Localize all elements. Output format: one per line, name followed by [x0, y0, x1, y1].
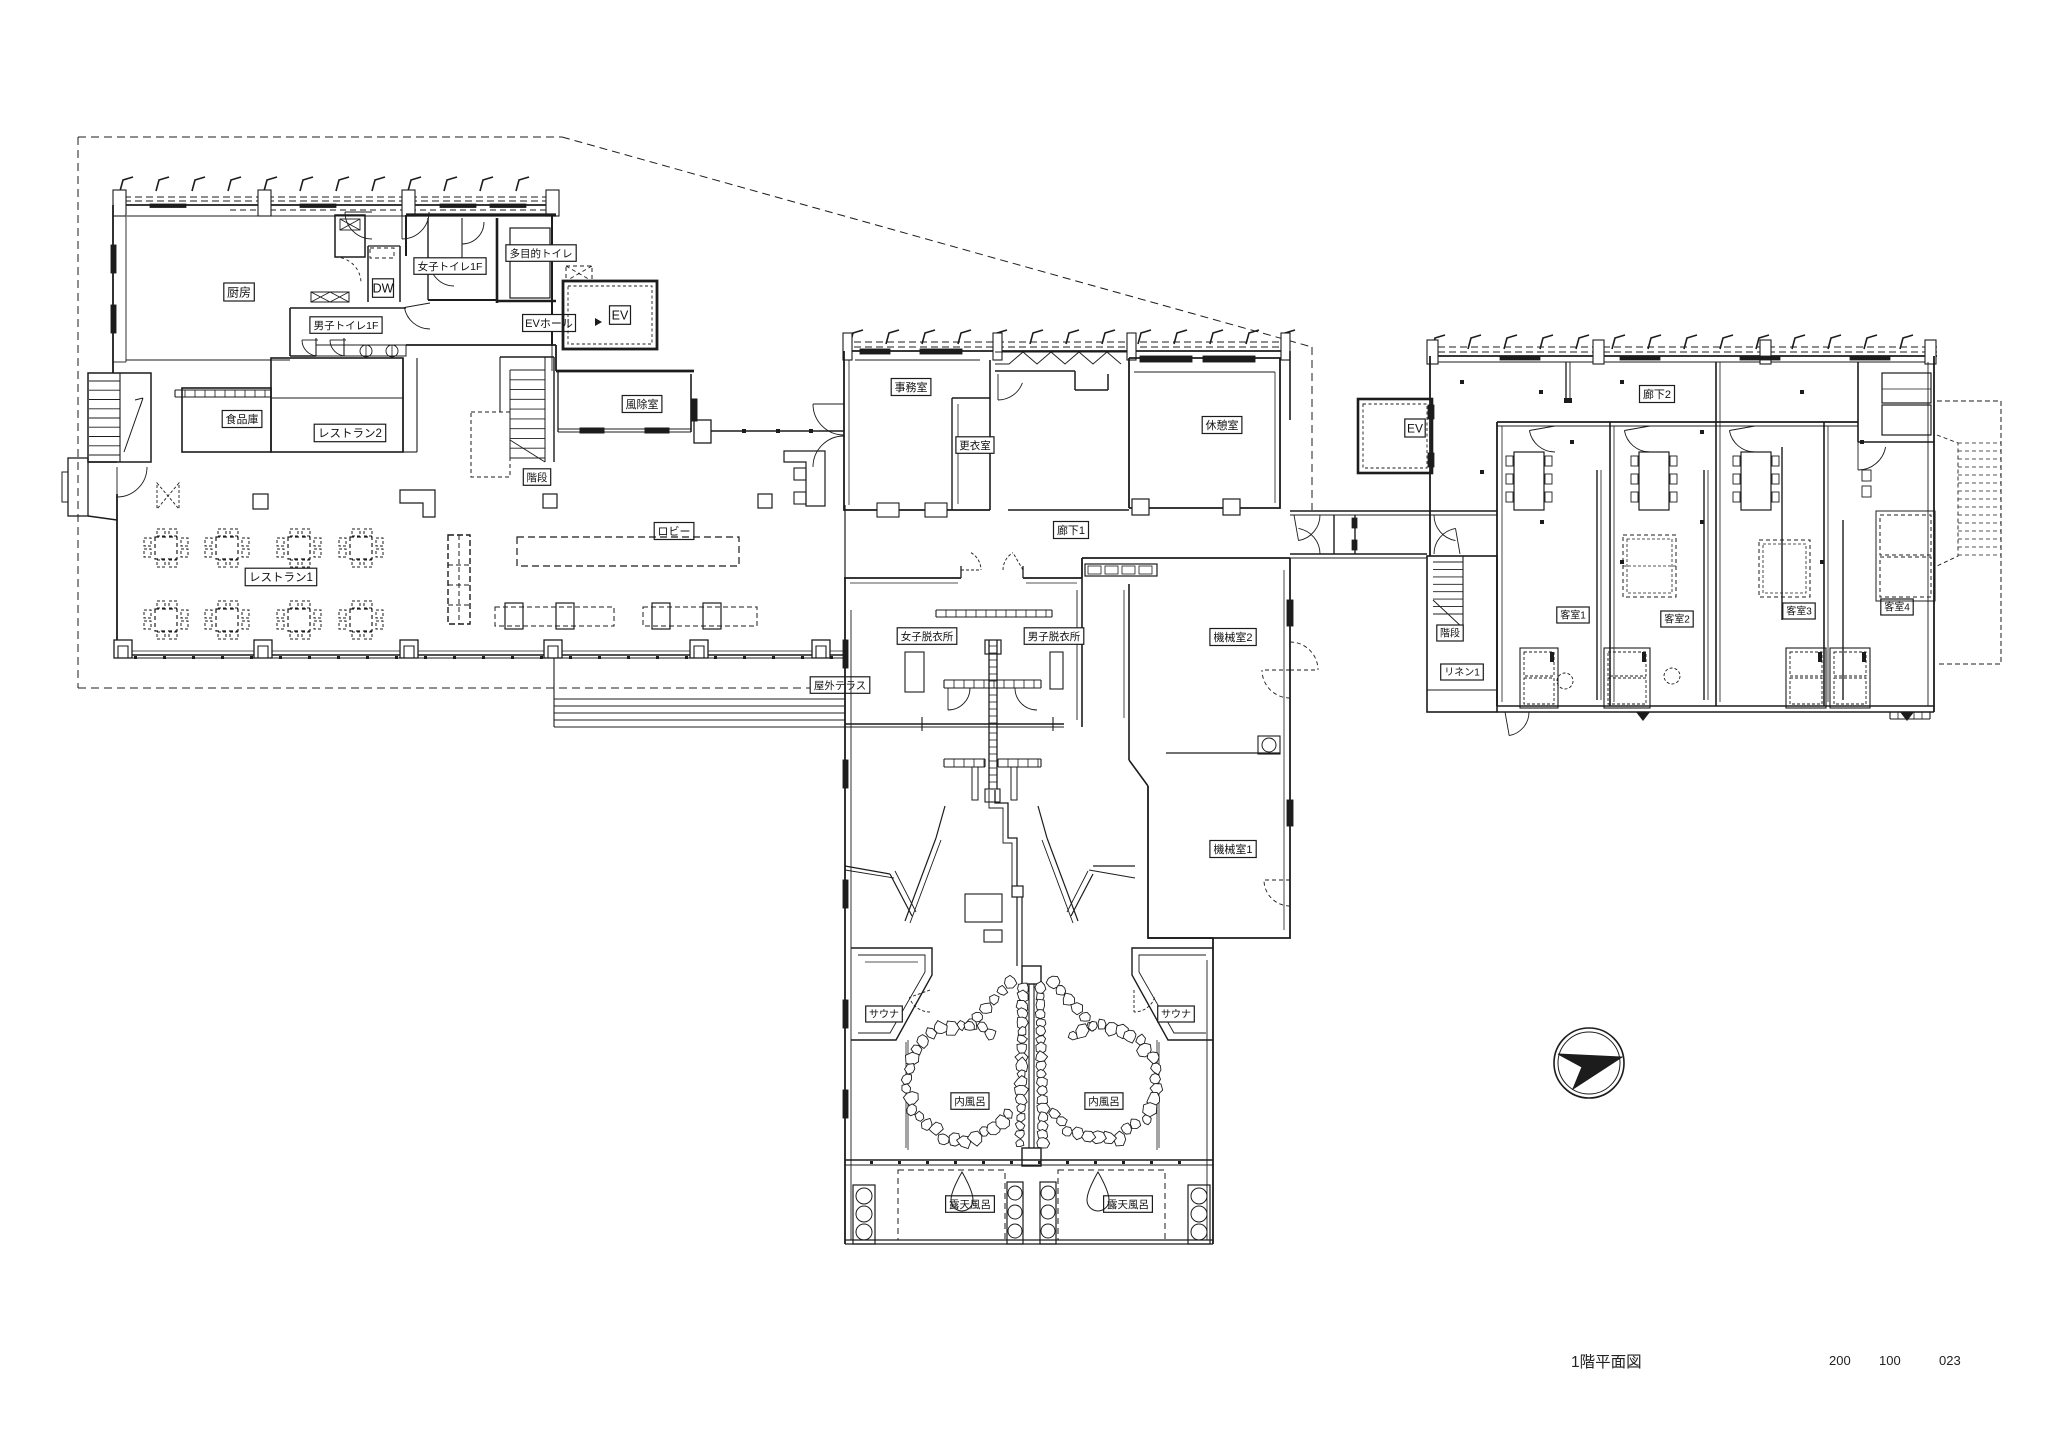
svg-text:リネン1: リネン1: [1444, 667, 1480, 679]
svg-text:レストラン2: レストラン2: [318, 428, 382, 440]
svg-text:男子トイレ1F: 男子トイレ1F: [314, 320, 379, 332]
svg-text:023: 023: [1939, 1353, 1961, 1368]
svg-text:サウナ: サウナ: [869, 1009, 899, 1021]
svg-text:機械室2: 機械室2: [1213, 630, 1252, 644]
svg-text:EVホール: EVホール: [525, 317, 573, 330]
svg-text:サウナ: サウナ: [1161, 1009, 1191, 1021]
svg-text:1階平面図: 1階平面図: [1571, 1353, 1642, 1371]
svg-text:風除室: 風除室: [626, 397, 659, 411]
svg-text:EV: EV: [612, 309, 629, 323]
svg-text:客室1: 客室1: [1560, 609, 1586, 622]
svg-text:ロビー: ロビー: [658, 525, 691, 538]
svg-text:階段: 階段: [1440, 627, 1460, 640]
svg-text:客室4: 客室4: [1884, 601, 1910, 614]
svg-text:女子トイレ1F: 女子トイレ1F: [418, 260, 483, 273]
svg-text:階段: 階段: [527, 471, 548, 484]
svg-text:事務室: 事務室: [895, 380, 928, 394]
svg-text:食品庫: 食品庫: [226, 412, 259, 426]
svg-text:DW: DW: [373, 282, 394, 296]
svg-text:廊下1: 廊下1: [1057, 523, 1085, 537]
svg-text:女子脱衣所: 女子脱衣所: [901, 630, 954, 643]
svg-text:200: 200: [1829, 1353, 1851, 1368]
svg-text:厨房: 厨房: [227, 284, 251, 299]
svg-text:内風呂: 内風呂: [1088, 1095, 1120, 1108]
svg-text:男子脱衣所: 男子脱衣所: [1028, 630, 1081, 643]
svg-text:更衣室: 更衣室: [959, 439, 991, 452]
svg-text:休憩室: 休憩室: [1206, 418, 1239, 432]
svg-text:多目的トイレ: 多目的トイレ: [510, 247, 573, 260]
svg-text:機械室1: 機械室1: [1213, 842, 1252, 856]
svg-text:客室3: 客室3: [1786, 605, 1812, 618]
svg-text:レストラン1: レストラン1: [249, 572, 313, 584]
svg-text:屋外テラス: 屋外テラス: [814, 680, 866, 692]
svg-text:廊下2: 廊下2: [1643, 387, 1671, 401]
svg-text:客室2: 客室2: [1664, 613, 1690, 626]
svg-text:内風呂: 内風呂: [954, 1095, 986, 1108]
svg-text:露天風呂: 露天風呂: [1107, 1199, 1149, 1211]
svg-text:EV: EV: [1407, 421, 1423, 435]
svg-text:100: 100: [1879, 1353, 1901, 1368]
